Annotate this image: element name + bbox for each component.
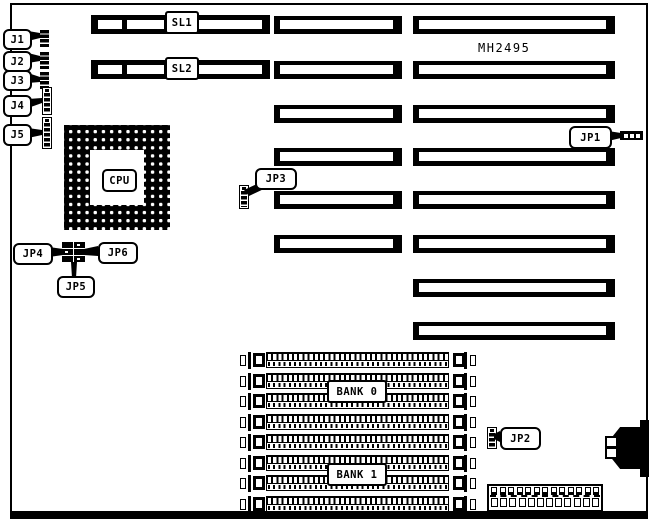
callout-j1-text: J1 [11,34,25,46]
callout-jp6-text: JP6 [108,247,128,259]
bank1-label-text: BANK 1 [337,469,378,481]
callout-j1: J1 [3,29,32,50]
sl1-label: SL1 [165,11,199,34]
callout-j3-text: J3 [11,75,25,87]
callout-jp2-text: JP2 [510,433,530,445]
callout-jp4-text: JP4 [23,248,43,260]
bank0-label-text: BANK 0 [337,386,378,398]
callout-jp4: JP4 [13,243,53,265]
motherboard-diagram: SL1 SL2 MH2495 CPU J1 J2 J3 J4 J5 JP1 JP… [0,0,650,520]
callout-j4-text: J4 [11,100,25,112]
callout-jp3-text: JP3 [266,173,286,185]
callout-j4: J4 [3,95,32,117]
callout-jp1: JP1 [569,126,612,149]
callout-jp5: JP5 [57,276,95,298]
cpu-label: CPU [102,169,137,192]
callout-j2: J2 [3,51,32,72]
bank1-label: BANK 1 [327,463,387,486]
sl2-label: SL2 [165,57,199,80]
callout-jp2: JP2 [500,427,541,450]
callout-jp1-text: JP1 [580,132,600,144]
cpu-label-text: CPU [109,175,129,187]
callout-j2-text: J2 [11,56,25,68]
callout-jp5-text: JP5 [66,281,86,293]
sl2-label-text: SL2 [172,63,192,75]
callout-jp6: JP6 [98,242,138,264]
callout-j5-text: J5 [11,129,25,141]
callout-jp3: JP3 [255,168,297,190]
bank0-label: BANK 0 [327,380,387,403]
callout-j3: J3 [3,70,32,91]
sl1-label-text: SL1 [172,17,192,29]
jp6-leader [84,246,98,256]
callout-j5: J5 [3,124,32,146]
